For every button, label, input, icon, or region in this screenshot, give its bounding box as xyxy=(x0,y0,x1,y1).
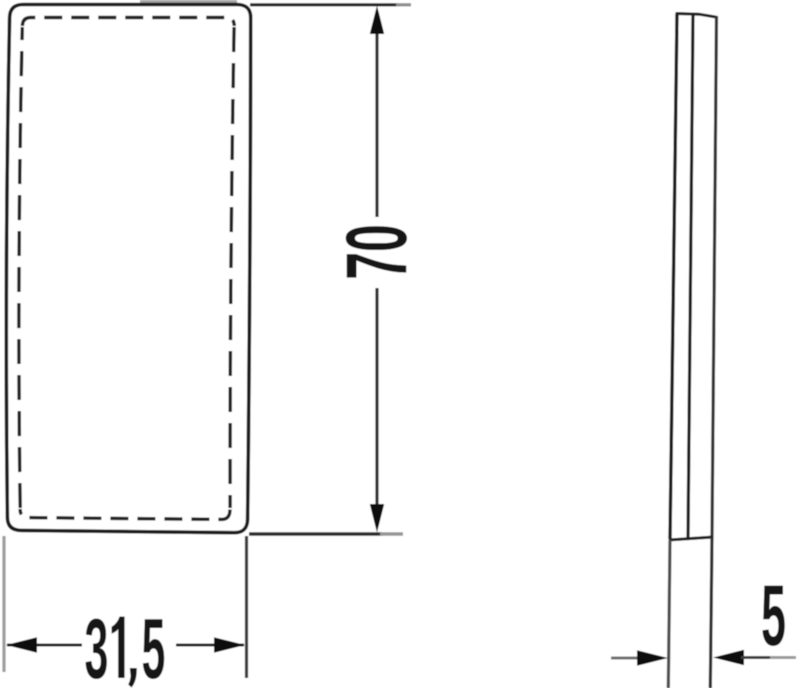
svg-text:5: 5 xyxy=(761,567,786,664)
svg-text:5: 5 xyxy=(142,602,166,688)
svg-text:70: 70 xyxy=(328,224,425,280)
svg-text:3: 3 xyxy=(85,602,109,688)
